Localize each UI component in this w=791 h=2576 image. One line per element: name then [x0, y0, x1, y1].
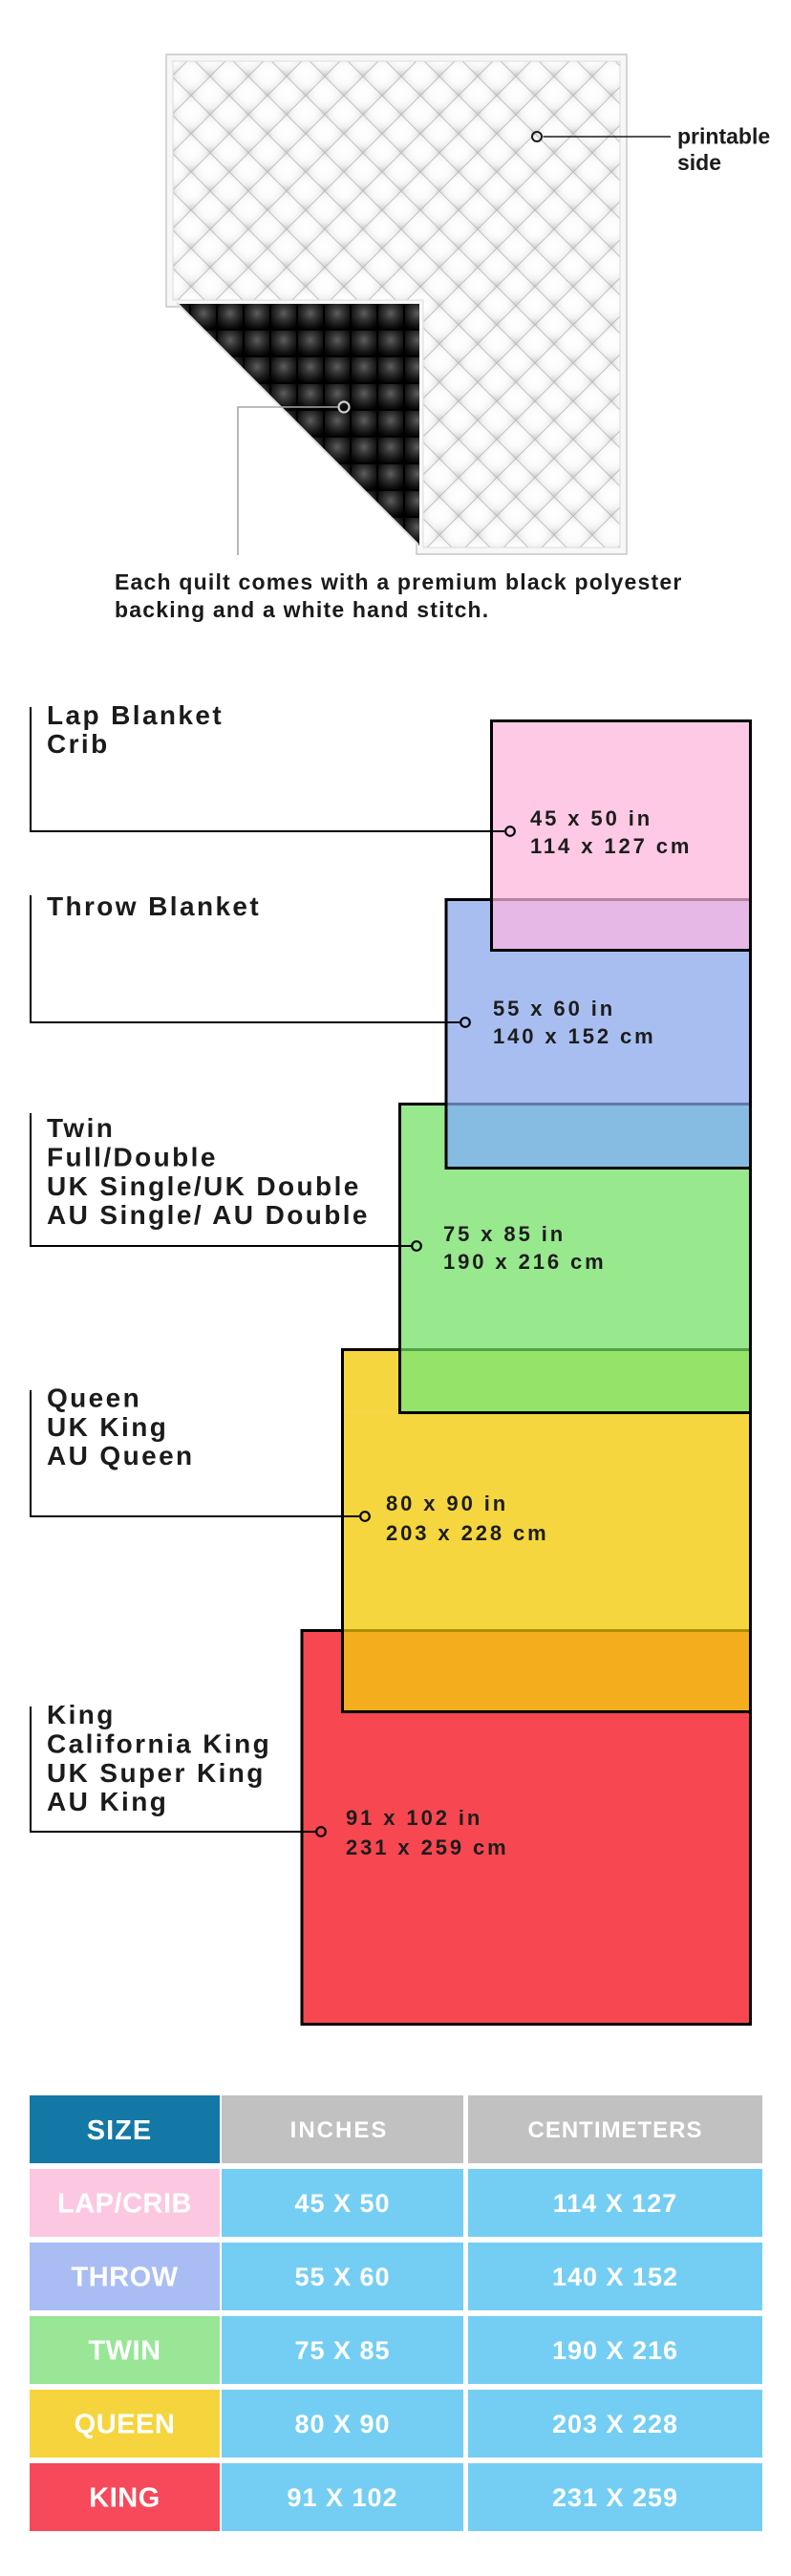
svg-text:55 x 60 in: 55 x 60 in: [493, 997, 615, 1020]
svg-text:Queen: Queen: [47, 1384, 141, 1413]
svg-text:190 x 216 cm: 190 x 216 cm: [443, 1250, 607, 1274]
svg-text:114 x 127 cm: 114 x 127 cm: [530, 834, 692, 858]
svg-text:Lap Blanket: Lap Blanket: [47, 700, 224, 730]
svg-text:AU Queen: AU Queen: [47, 1441, 195, 1470]
svg-text:91 x 102 in: 91 x 102 in: [346, 1806, 482, 1830]
svg-text:INCHES: INCHES: [290, 2117, 389, 2143]
svg-text:California King: California King: [47, 1729, 271, 1759]
svg-text:Each quilt comes with a premiu: Each quilt comes with a premium black po…: [115, 569, 683, 594]
svg-text:231 X 259: 231 X 259: [552, 2483, 678, 2512]
svg-text:AU Single/ AU Double: AU Single/ AU Double: [47, 1200, 370, 1230]
svg-text:Throw Blanket: Throw Blanket: [47, 891, 261, 921]
svg-text:114 X 127: 114 X 127: [553, 2189, 678, 2218]
svg-text:Full/Double: Full/Double: [47, 1143, 218, 1172]
svg-text:75 X 85: 75 X 85: [294, 2336, 390, 2365]
svg-text:45 X 50: 45 X 50: [294, 2189, 390, 2218]
svg-text:UK Single/UK Double: UK Single/UK Double: [47, 1171, 361, 1201]
svg-text:side: side: [677, 150, 721, 175]
svg-text:140 X 152: 140 X 152: [552, 2263, 678, 2291]
svg-text:91 X 102: 91 X 102: [287, 2483, 397, 2512]
svg-text:231 x 259 cm: 231 x 259 cm: [346, 1835, 509, 1859]
svg-text:backing and a white hand stitc: backing and a white hand stitch.: [115, 597, 489, 622]
svg-text:TWIN: TWIN: [88, 2336, 160, 2367]
svg-text:140 x 152 cm: 140 x 152 cm: [493, 1024, 656, 1048]
svg-text:80 x 90 in: 80 x 90 in: [386, 1492, 508, 1515]
svg-text:45 x 50 in: 45 x 50 in: [530, 806, 652, 830]
svg-text:printable: printable: [677, 124, 770, 149]
svg-text:King: King: [47, 1700, 116, 1729]
svg-text:SIZE: SIZE: [87, 2115, 152, 2146]
svg-text:203 x 228 cm: 203 x 228 cm: [386, 1521, 549, 1545]
svg-text:CENTIMETERS: CENTIMETERS: [527, 2117, 702, 2143]
svg-text:203 X 228: 203 X 228: [552, 2410, 678, 2438]
svg-text:80 X 90: 80 X 90: [294, 2410, 390, 2438]
svg-text:55 X 60: 55 X 60: [294, 2263, 390, 2291]
svg-text:AU King: AU King: [47, 1787, 168, 1816]
svg-text:LAP/CRIB: LAP/CRIB: [57, 2189, 192, 2220]
svg-text:Twin: Twin: [47, 1113, 115, 1143]
svg-text:UK King: UK King: [47, 1412, 168, 1442]
svg-text:190 X 216: 190 X 216: [552, 2336, 678, 2365]
svg-text:KING: KING: [89, 2483, 160, 2514]
svg-text:UK Super King: UK Super King: [47, 1758, 266, 1788]
svg-text:75 x 85 in: 75 x 85 in: [443, 1222, 566, 1246]
svg-text:Crib: Crib: [47, 729, 110, 759]
svg-text:QUEEN: QUEEN: [75, 2410, 176, 2440]
svg-text:THROW: THROW: [71, 2263, 178, 2293]
